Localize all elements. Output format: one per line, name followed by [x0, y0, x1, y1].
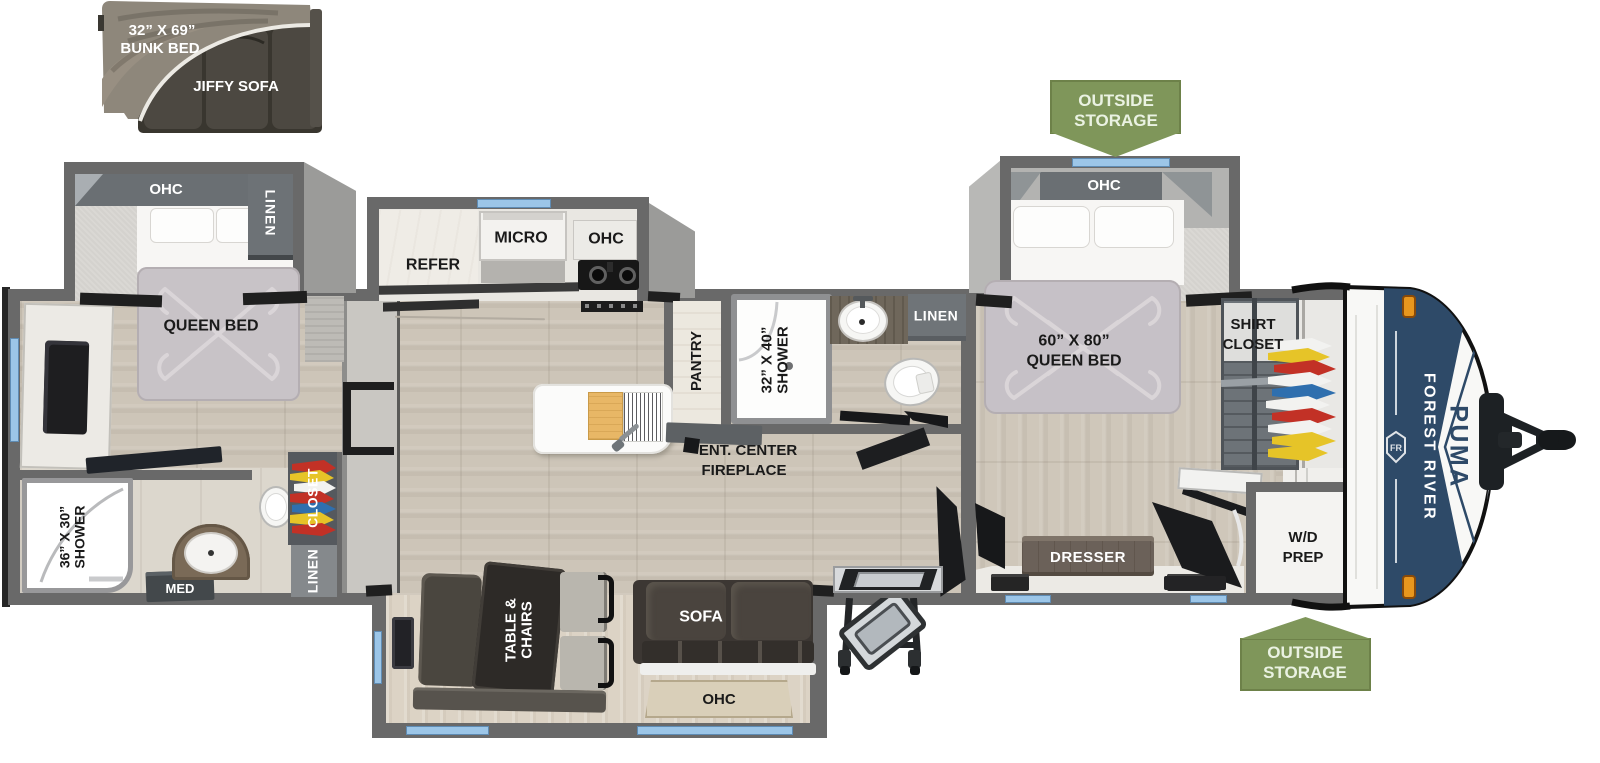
svg-text:FR: FR [1390, 443, 1402, 453]
